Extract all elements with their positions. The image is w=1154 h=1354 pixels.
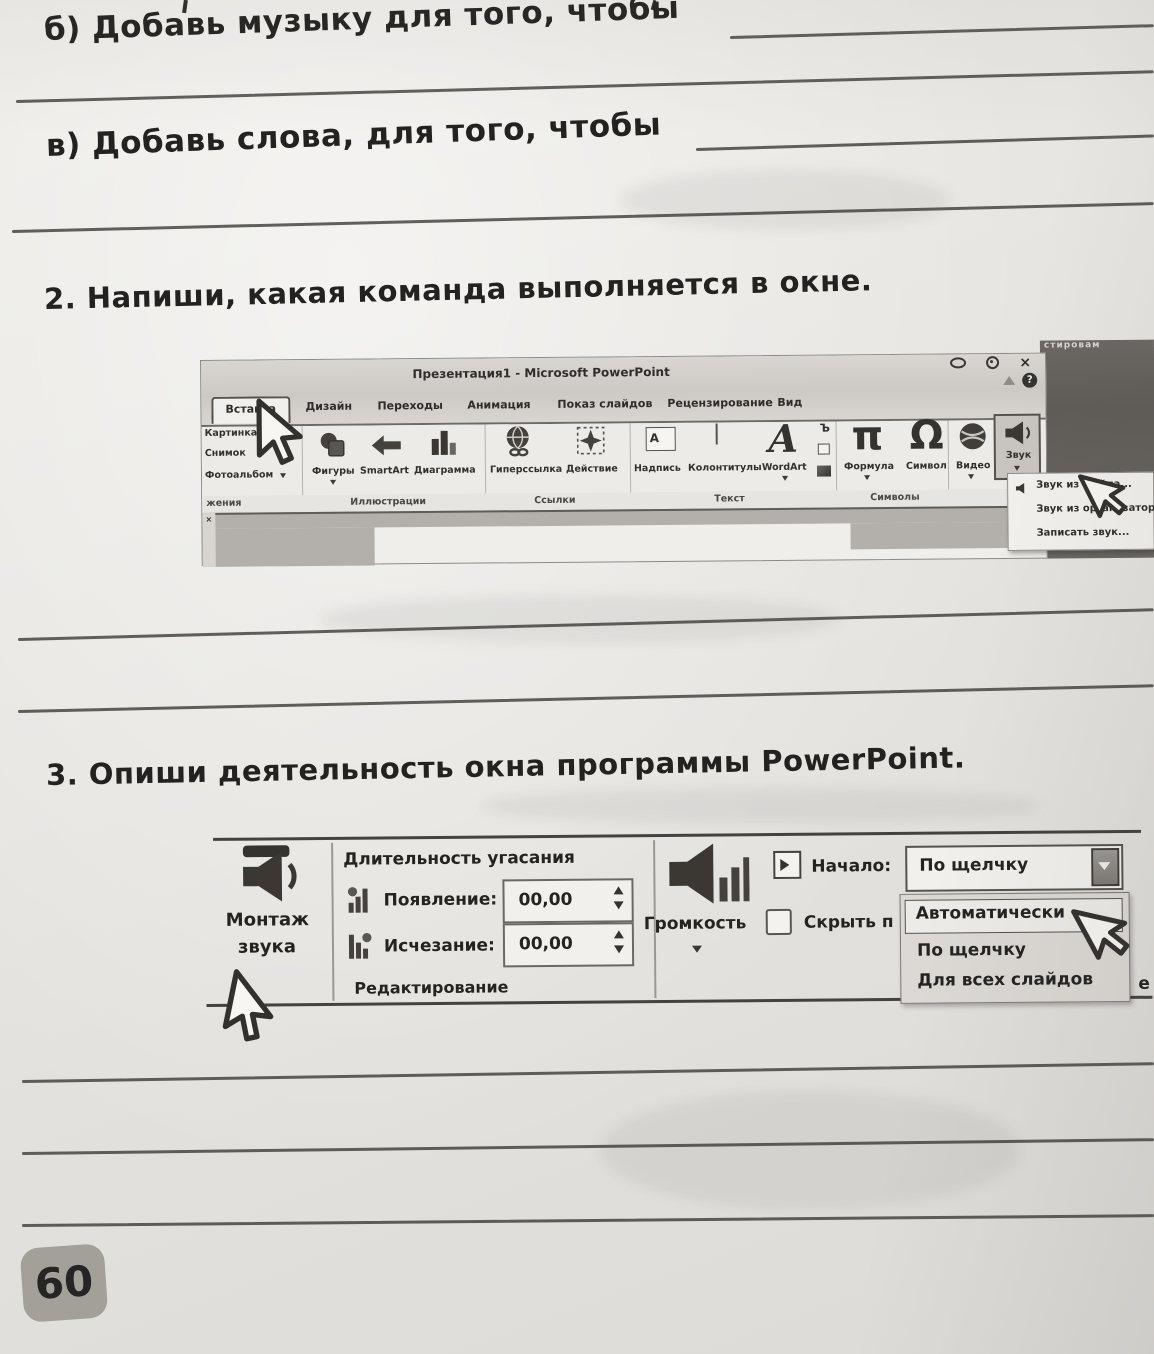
menu-item-record-sound[interactable]: Записать звук... <box>1036 527 1129 539</box>
equation-icon[interactable]: π <box>851 413 883 459</box>
tab-vid[interactable]: Вид <box>777 396 802 409</box>
button-figury[interactable]: Фигуры <box>312 466 355 477</box>
group-label-ssylki: Ссылки <box>534 495 575 506</box>
button-zvuk-label: Звук <box>1006 450 1032 461</box>
fade-out-field[interactable]: 00,00 <box>503 922 634 967</box>
fade-in-value: 00,00 <box>519 890 573 910</box>
start-label: Начало: <box>811 856 891 877</box>
button-simvol[interactable]: Символ <box>906 460 947 471</box>
slide-area-left <box>202 527 374 566</box>
cursor-arrow-on-insert-tab <box>250 395 307 471</box>
writing-line <box>22 1062 1154 1082</box>
hide-during-show-checkbox[interactable] <box>766 909 792 935</box>
button-snimok[interactable]: Снимок <box>205 448 246 459</box>
fade-out-label: Исчезание: <box>384 935 495 956</box>
writing-line <box>22 1214 1154 1226</box>
sound-button[interactable]: Звук <box>994 414 1042 480</box>
group-label-illyustratsii: Иллюстрации <box>350 496 426 508</box>
button-kartinka[interactable]: Картинка <box>205 428 258 439</box>
trim-audio-label-line2[interactable]: звука <box>238 936 296 958</box>
editing-group-label: Редактирование <box>354 977 508 997</box>
button-deystvie[interactable]: Действие <box>566 463 618 474</box>
start-value: По щелчку <box>919 855 1028 876</box>
help-icon[interactable]: ? <box>1022 373 1037 388</box>
dropdown-item-on-click[interactable]: По щелчку <box>917 940 1026 961</box>
question-v-label: в) Добавь слова, для того, чтобы <box>45 107 661 164</box>
powerpoint-ribbon-screenshot: стировам Презентация1 - Microsoft PowerP… <box>200 352 1154 568</box>
trim-audio-icon[interactable] <box>231 843 302 910</box>
close-icon[interactable]: × <box>1019 356 1031 368</box>
writing-line <box>696 134 1154 150</box>
volume-icon[interactable] <box>665 837 750 914</box>
page-number-badge: 60 <box>20 1243 109 1323</box>
tab-dizayn[interactable]: Дизайн <box>305 400 352 413</box>
corner-artifact-text: стировам <box>1044 340 1101 350</box>
header-footer-icon[interactable] <box>716 423 718 444</box>
fade-in-stepper[interactable] <box>613 886 623 909</box>
combobox-dropdown-button[interactable] <box>1091 848 1119 886</box>
fade-in-icon <box>345 885 373 919</box>
fade-out-stepper[interactable] <box>614 930 624 953</box>
button-wordart[interactable]: WordArt <box>762 462 807 473</box>
fade-duration-header: Длительность угасания <box>343 848 575 870</box>
writing-line <box>12 202 1154 232</box>
ribbon-body: Картинка Снимок Фотоальбом Фигуры SmartA… <box>202 420 1047 496</box>
button-giperssylka[interactable]: Гиперссылка <box>490 464 562 476</box>
dropdown-item-all-slides[interactable]: Для всех слайдов <box>917 969 1093 991</box>
start-combobox[interactable]: По щелчку <box>905 844 1123 892</box>
volume-label[interactable]: Громкость <box>644 913 747 934</box>
fade-out-icon <box>346 931 374 965</box>
smartart-icon[interactable] <box>370 431 404 463</box>
start-icon <box>773 851 801 879</box>
button-nadpis[interactable]: Надпись <box>634 463 681 474</box>
writing-line <box>18 684 1154 712</box>
fade-in-field[interactable]: 00,00 <box>502 878 633 923</box>
outline-pane-edge[interactable]: × <box>202 513 215 567</box>
question-b-label: б) Добавь музыку для того, чтобы <box>43 0 680 48</box>
group-label-tekst: Текст <box>714 493 745 504</box>
button-formula[interactable]: Формула <box>844 461 894 472</box>
date-time-icon[interactable]: Ъ <box>820 422 830 435</box>
button-kolontituly[interactable]: Колонтитулы <box>688 462 762 474</box>
button-smartart[interactable]: SmartArt <box>360 465 409 476</box>
scan-artifact <box>620 170 950 230</box>
minimize-icon[interactable] <box>950 357 966 368</box>
object-icon[interactable] <box>817 465 831 476</box>
tab-retsenzirovanie[interactable]: Рецензирование <box>667 396 773 410</box>
writing-line <box>730 24 1154 38</box>
task-2-heading: 2. Напиши, какая команда выполняется в о… <box>44 263 873 316</box>
group-label-simvoly: Символы <box>870 492 920 503</box>
cropped-letter-fragment: е <box>1138 974 1150 994</box>
scan-artifact <box>480 788 1040 824</box>
restore-icon[interactable] <box>986 356 999 369</box>
fade-out-value: 00,00 <box>519 934 573 954</box>
tab-animatsiya[interactable]: Анимация <box>467 398 530 412</box>
hyperlink-globe-icon[interactable] <box>502 424 536 462</box>
task-3-heading: 3. Опиши деятельность окна программы Pow… <box>46 740 966 792</box>
action-icon[interactable] <box>576 425 606 459</box>
slide-number-icon[interactable] <box>818 444 830 455</box>
button-diagramma[interactable]: Диаграмма <box>414 465 476 477</box>
ribbon-collapse-icon[interactable] <box>1003 376 1015 385</box>
writing-line <box>16 70 1154 102</box>
symbol-icon[interactable]: Ω <box>909 413 943 459</box>
window-controls: × <box>950 356 1031 370</box>
workbook-page: б) Добавь музыку для того, чтобы в) Доба… <box>0 0 1154 1354</box>
powerpoint-window: Презентация1 - Microsoft PowerPoint × ? … <box>200 353 1048 566</box>
scan-artifact <box>600 1090 1020 1210</box>
button-video[interactable]: Видео <box>956 460 991 471</box>
group-label-izobrazheniya: жения <box>206 498 241 509</box>
textbox-icon[interactable]: А <box>646 427 676 451</box>
video-icon[interactable] <box>956 420 990 458</box>
fade-in-label: Появление: <box>383 889 497 910</box>
hide-during-show-label: Скрыть п <box>804 912 894 933</box>
trim-audio-label-line1[interactable]: Монтаж <box>226 909 309 931</box>
cursor-arrow-on-montage <box>213 965 285 1053</box>
shapes-icon[interactable] <box>318 430 348 464</box>
tab-perekhody[interactable]: Переходы <box>377 399 443 413</box>
window-title: Презентация1 - Microsoft PowerPoint <box>361 364 721 381</box>
tab-pokaz-slaydov[interactable]: Показ слайдов <box>557 397 652 411</box>
chart-icon[interactable] <box>428 427 458 461</box>
wordart-icon[interactable]: А <box>768 416 799 461</box>
audio-tools-screenshot: Монтаж звука Длительность угасания Появл… <box>205 826 1154 1016</box>
